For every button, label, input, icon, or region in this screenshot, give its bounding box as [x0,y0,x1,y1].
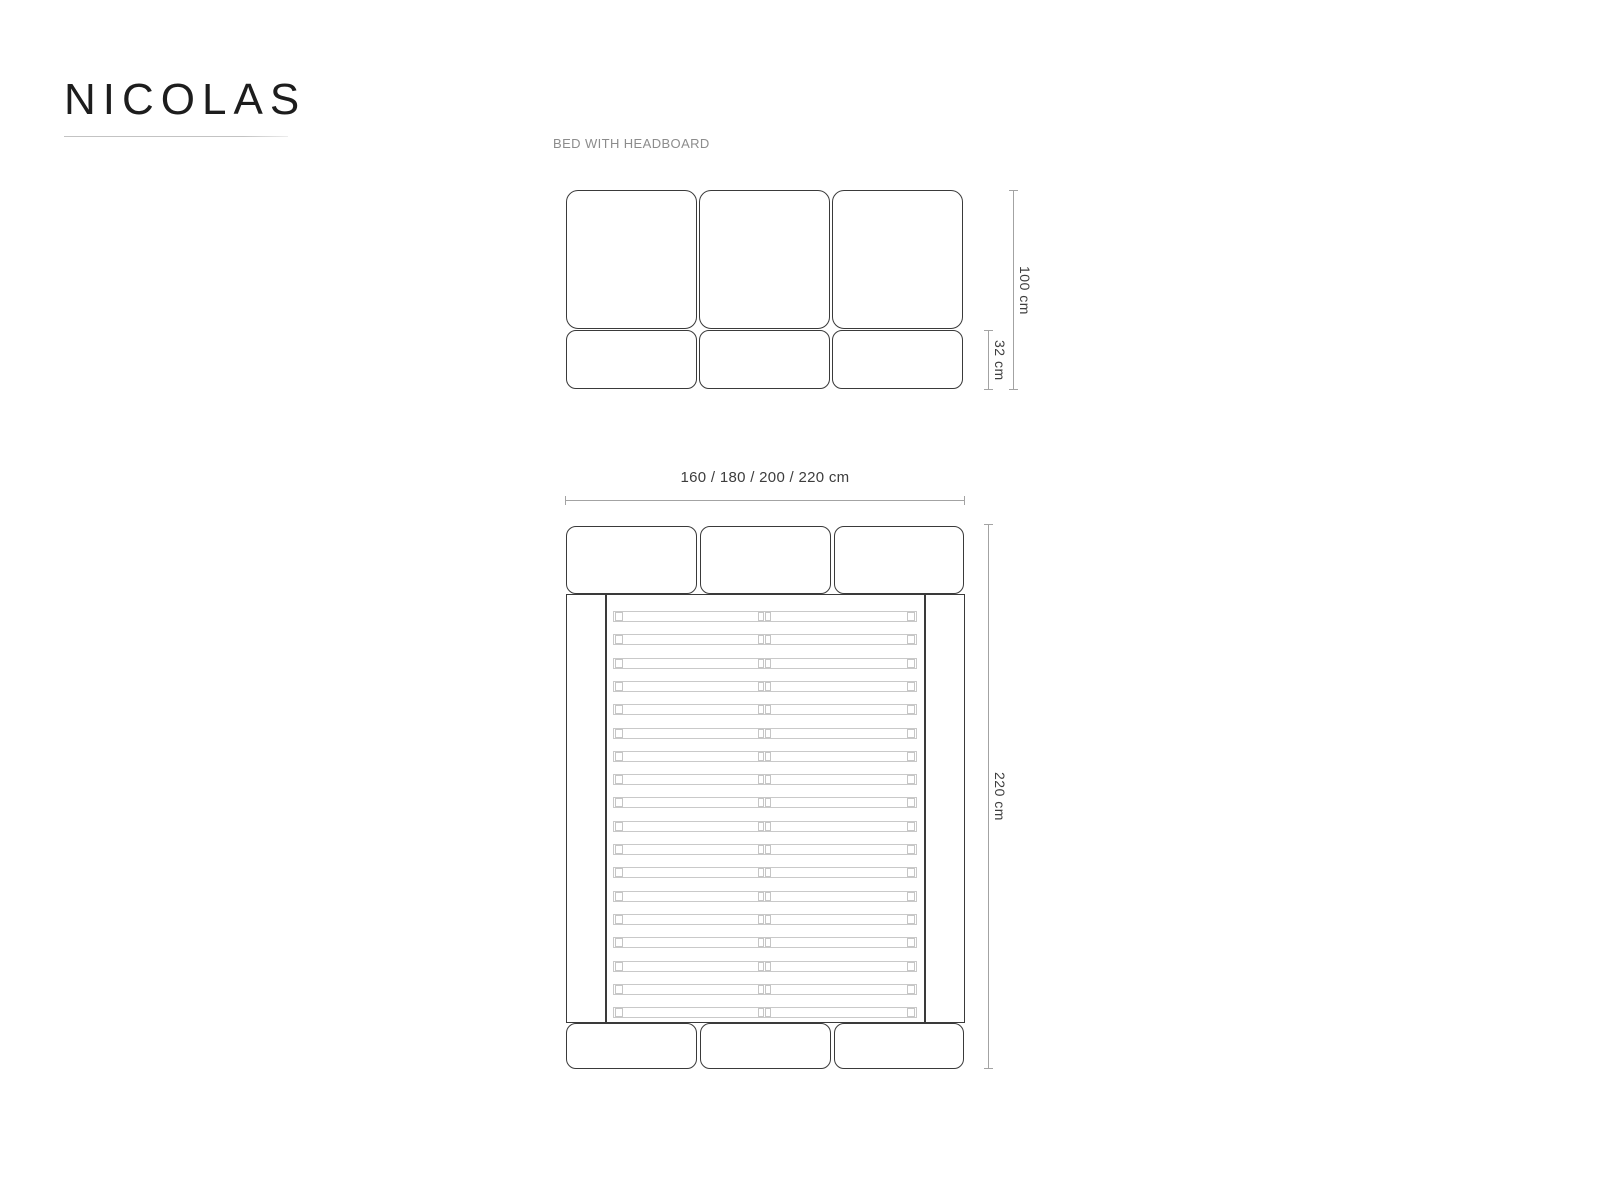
bed-slat [613,914,917,925]
slat-end-cap [907,729,915,738]
slat-end-cap [907,682,915,691]
bed-slat [613,634,917,645]
plan-footer-cushion [834,1023,964,1069]
plan-footer-cushion [566,1023,697,1069]
bed-slat [613,728,917,739]
headboard-panel [832,190,963,329]
dimension-line-base-height [988,330,989,390]
slat-end-cap [615,752,623,761]
slat-center-cap [758,798,764,807]
slat-end-cap [615,985,623,994]
slat-center-cap [758,845,764,854]
slat-center-cap [758,752,764,761]
bed-slat [613,844,917,855]
slat-center-cap [758,635,764,644]
slat-end-cap [907,612,915,621]
bed-slat [613,984,917,995]
bed-slat [613,751,917,762]
side-rail-left [605,595,607,1022]
slat-end-cap [907,938,915,947]
slat-center-cap [765,892,771,901]
brand-title: NICOLAS [64,78,306,122]
slat-end-cap [907,822,915,831]
slat-end-cap [907,705,915,714]
slat-end-cap [615,938,623,947]
dimension-line-length [988,524,989,1069]
plan-headboard-cushion [834,526,964,594]
slat-center-cap [765,659,771,668]
bed-slat [613,961,917,972]
base-panel [699,330,830,389]
plan-headboard-cushion [700,526,831,594]
slat-end-cap [907,915,915,924]
slat-center-cap [765,915,771,924]
slat-center-cap [765,868,771,877]
slat-end-cap [907,892,915,901]
slat-area [613,611,917,1021]
slat-end-cap [907,659,915,668]
slat-end-cap [615,1008,623,1017]
slat-center-cap [765,705,771,714]
title-underline [64,136,288,137]
slat-center-cap [765,845,771,854]
base-panel [832,330,963,389]
slat-center-cap [758,892,764,901]
slat-center-cap [758,729,764,738]
bed-slat [613,658,917,669]
bed-slat [613,704,917,715]
dimension-line-width [565,500,965,501]
slat-end-cap [907,798,915,807]
slat-center-cap [758,822,764,831]
slat-center-cap [765,938,771,947]
slat-end-cap [615,729,623,738]
bed-slat [613,821,917,832]
headboard-panel [699,190,830,329]
headboard-panel [566,190,697,329]
dimension-tick [565,496,566,505]
slat-center-cap [765,752,771,761]
slat-end-cap [615,659,623,668]
slat-end-cap [615,892,623,901]
slat-end-cap [907,868,915,877]
slat-center-cap [758,682,764,691]
slat-center-cap [758,938,764,947]
slat-center-cap [765,775,771,784]
slat-end-cap [615,612,623,621]
slat-end-cap [615,962,623,971]
dimension-label-total-height: 100 cm [1017,190,1033,390]
slat-end-cap [907,985,915,994]
slat-center-cap [758,962,764,971]
bed-slat [613,774,917,785]
slat-end-cap [615,775,623,784]
slat-end-cap [615,705,623,714]
plan-headboard-cushion [566,526,697,594]
dimension-label-base-height: 32 cm [992,330,1008,390]
bed-slat [613,937,917,948]
slat-end-cap [907,775,915,784]
slat-center-cap [765,729,771,738]
slat-center-cap [765,985,771,994]
plan-footer-cushion [700,1023,831,1069]
slat-center-cap [758,915,764,924]
slat-end-cap [615,635,623,644]
slat-end-cap [907,1008,915,1017]
slat-end-cap [907,962,915,971]
slat-center-cap [765,962,771,971]
slat-end-cap [907,635,915,644]
slat-center-cap [758,705,764,714]
base-panel [566,330,697,389]
side-rail-right [924,595,926,1022]
slat-end-cap [615,682,623,691]
bed-slat [613,681,917,692]
dimension-tick [964,496,965,505]
view-subtitle: BED WITH HEADBOARD [553,136,710,151]
slat-center-cap [758,868,764,877]
diagram-canvas: NICOLAS BED WITH HEADBOARD 32 cm 100 cm … [0,0,1600,1200]
slat-center-cap [758,775,764,784]
slat-end-cap [907,752,915,761]
bed-slat [613,891,917,902]
dimension-line-total-height [1013,190,1014,390]
slat-center-cap [758,612,764,621]
slat-center-cap [758,1008,764,1017]
slat-end-cap [615,845,623,854]
slat-center-cap [758,659,764,668]
bed-slat [613,867,917,878]
slat-end-cap [615,822,623,831]
bed-slat [613,611,917,622]
slat-center-cap [765,798,771,807]
slat-center-cap [765,635,771,644]
dimension-label-length: 220 cm [992,524,1008,1069]
slat-end-cap [615,798,623,807]
dimension-label-width: 160 / 180 / 200 / 220 cm [565,469,965,486]
slat-center-cap [765,822,771,831]
slat-end-cap [907,845,915,854]
slat-end-cap [615,868,623,877]
bed-slat [613,1007,917,1018]
slat-center-cap [765,1008,771,1017]
slat-center-cap [765,612,771,621]
bed-slat [613,797,917,808]
slat-center-cap [765,682,771,691]
slat-center-cap [758,985,764,994]
slat-end-cap [615,915,623,924]
